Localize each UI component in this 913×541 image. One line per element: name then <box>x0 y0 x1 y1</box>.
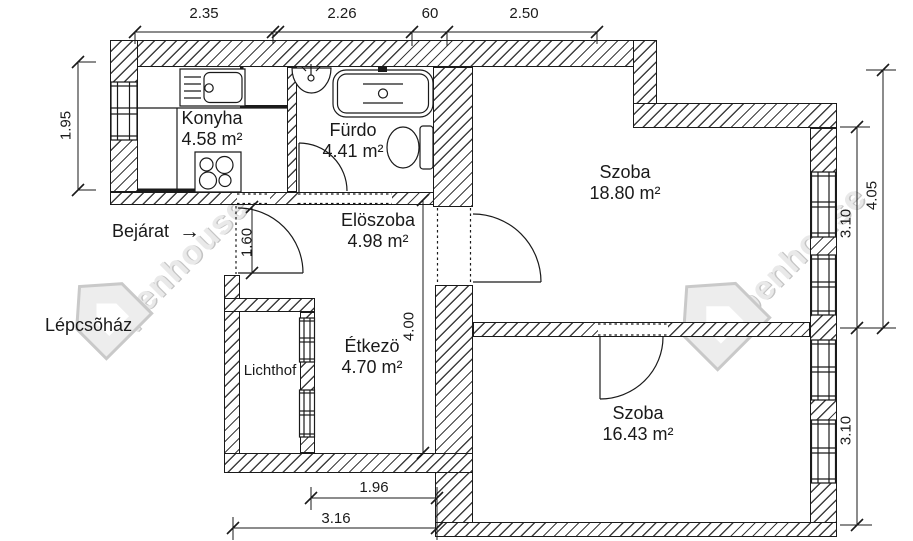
dimension-label: 3.10 <box>838 194 855 254</box>
window <box>300 390 315 437</box>
kitchen-sink <box>180 69 245 106</box>
dimension-label: 60 <box>400 5 460 22</box>
dimension-label: 1.96 <box>344 479 404 496</box>
room-label-furdo: Fürdo 4.41 m² <box>293 120 413 162</box>
window <box>812 420 836 483</box>
dimension-label: 3.16 <box>306 510 366 527</box>
szoba1-door <box>438 208 542 284</box>
room-label-szoba2: Szoba 16.43 m² <box>578 403 698 445</box>
dimension-label: 4.00 <box>401 297 418 357</box>
room-label-lichthof: Lichthof <box>227 360 313 381</box>
bathtub <box>333 67 433 117</box>
window <box>111 82 137 140</box>
window <box>812 172 836 237</box>
dimension-label: 4.05 <box>864 166 881 226</box>
dimension-label: 2.35 <box>174 5 234 22</box>
szoba2-door <box>598 324 668 399</box>
room-label-eloszoba: Elöszoba 4.98 m² <box>318 210 438 252</box>
dimension-label: 2.50 <box>494 5 554 22</box>
stairwell-label: Lépcsõház <box>45 315 132 336</box>
dimension-label: 1.60 <box>239 213 256 273</box>
plan-linework <box>0 0 913 541</box>
room-label-szoba1: Szoba 18.80 m² <box>565 162 685 204</box>
dimension-label: 3.10 <box>838 401 855 461</box>
kitchen-door-opening <box>237 194 270 204</box>
entrance-arrow-icon: → <box>179 223 200 241</box>
dimension-label: 1.95 <box>58 96 75 156</box>
washbasin <box>292 64 331 93</box>
window <box>812 340 836 400</box>
dimension-label: 2.26 <box>312 5 372 22</box>
floor-plan: openhouse openhouse <box>0 0 913 541</box>
room-label-konyha: Konyha 4.58 m² <box>152 108 272 150</box>
window <box>812 255 836 315</box>
entrance-label: Bejárat → <box>112 221 200 242</box>
stove <box>195 152 241 192</box>
